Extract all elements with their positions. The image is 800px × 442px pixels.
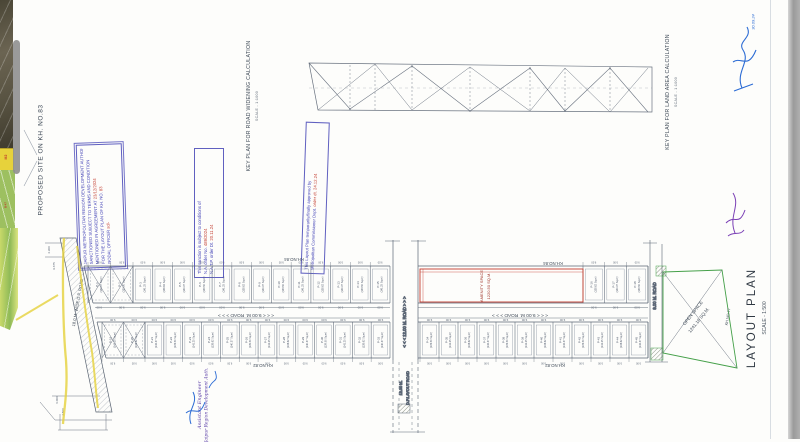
kh-no-84-label-1: KH.NO.84 <box>284 257 304 262</box>
svg-text:P-43(141.25 Sq.m): P-43(141.25 Sq.m) <box>596 332 604 348</box>
svg-text:P-30(139.50 Sq.m): P-30(139.50 Sq.m) <box>320 332 328 348</box>
svg-text:9.00: 9.00 <box>96 261 101 264</box>
amenity-space: AMENITY SPACE 1220.50 SQ.M. <box>420 269 583 302</box>
svg-text:P-2(139.50 Sq.m): P-2(139.50 Sq.m) <box>118 276 126 292</box>
svg-text:9.00: 9.00 <box>246 362 251 365</box>
svg-text:9.00: 9.00 <box>616 362 621 365</box>
svg-text:P-5(140.37 Sq.m): P-5(140.37 Sq.m) <box>178 276 186 292</box>
svg-text:9.00: 9.00 <box>278 306 284 310</box>
svg-text:9.00: 9.00 <box>635 362 640 365</box>
svg-text:9.00: 9.00 <box>578 318 584 322</box>
svg-text:P-37(140.37 Sq.m): P-37(140.37 Sq.m) <box>482 332 490 348</box>
svg-text:9.00: 9.00 <box>131 362 136 365</box>
svg-text:P-41(140.37 Sq.m): P-41(140.37 Sq.m) <box>558 332 566 348</box>
mid-road-label-1: < < < 9.00 M. ROAD > > > <box>218 312 274 318</box>
svg-text:P-10(139.50 Sq.m): P-10(139.50 Sq.m) <box>277 276 285 292</box>
leader-lines <box>24 130 37 186</box>
svg-text:6.000: 6.000 <box>55 396 59 404</box>
svg-text:P-36(138.62 Sq.m): P-36(138.62 Sq.m) <box>463 332 471 348</box>
svg-text:9.00: 9.00 <box>445 318 451 322</box>
svg-text:9.00: 9.00 <box>179 306 185 310</box>
svg-text:9.00: 9.00 <box>634 261 639 264</box>
svg-text:9.00: 9.00 <box>591 261 596 264</box>
svg-text:9.00: 9.00 <box>208 362 213 365</box>
svg-text:9.00: 9.00 <box>159 306 165 310</box>
kh-no-82-label-2: KH.NO.82 <box>545 363 565 368</box>
svg-text:9.00: 9.00 <box>170 318 176 322</box>
svg-text:9.00: 9.00 <box>597 362 602 365</box>
svg-text:9.00: 9.00 <box>239 261 244 264</box>
svg-text:9.00: 9.00 <box>258 261 263 264</box>
svg-text:9.00: 9.00 <box>357 261 362 264</box>
svg-text:P-18(139.50 Sq.m): P-18(139.50 Sq.m) <box>633 276 641 292</box>
svg-text:P-4(138.62 Sq.m): P-4(138.62 Sq.m) <box>158 276 166 292</box>
svg-text:P-27(141.25 Sq.m): P-27(141.25 Sq.m) <box>263 332 271 348</box>
svg-text:9.00: 9.00 <box>635 318 641 322</box>
svg-text:9.00: 9.00 <box>131 318 137 322</box>
svg-text:9.00: 9.00 <box>321 318 327 322</box>
svg-text:P-3(141.25 Sq.m): P-3(141.25 Sq.m) <box>139 276 147 292</box>
svg-text:9.00: 9.00 <box>521 318 527 322</box>
svg-text:9.00: 9.00 <box>298 306 304 310</box>
svg-text:9.00: 9.00 <box>227 318 233 322</box>
svg-text:9.00: 9.00 <box>540 362 545 365</box>
svg-text:9.00: 9.00 <box>110 318 116 322</box>
svg-text:P-21(140.37 Sq.m): P-21(140.37 Sq.m) <box>150 332 158 348</box>
svg-text:P-13(140.37 Sq.m): P-13(140.37 Sq.m) <box>336 276 344 292</box>
svg-text:9.00: 9.00 <box>340 318 346 322</box>
svg-text:9.00: 9.00 <box>318 306 324 310</box>
svg-text:9.00: 9.00 <box>160 261 165 264</box>
svg-text:9.00: 9.00 <box>302 362 307 365</box>
svg-text:9.00: 9.00 <box>359 318 365 322</box>
svg-text:9.00: 9.00 <box>337 306 343 310</box>
svg-text:9.00: 9.00 <box>338 261 343 264</box>
left-dp-road: 4.300 9.675 6.000 4.500 18.0 M. WIDE D.P… <box>40 238 112 430</box>
svg-text:9.00: 9.00 <box>464 318 470 322</box>
svg-text:P-28(138.62 Sq.m): P-28(138.62 Sq.m) <box>282 332 290 348</box>
svg-text:9.00: 9.00 <box>426 362 431 365</box>
svg-text:P-16(138.62 Sq.m): P-16(138.62 Sq.m) <box>590 276 598 292</box>
svg-text:P-12(138.62 Sq.m): P-12(138.62 Sq.m) <box>317 276 325 292</box>
svg-text:9.00: 9.00 <box>278 261 283 264</box>
svg-text:9.00: 9.00 <box>245 318 251 322</box>
svg-text:9.00: 9.00 <box>340 362 345 365</box>
svg-text:9.00: 9.00 <box>119 261 124 264</box>
signature-top-blue <box>733 27 756 91</box>
cross-road-label: < < < 12.00 M. ROAD > > > <box>402 296 407 348</box>
svg-text:P-6(139.50 Sq.m): P-6(139.50 Sq.m) <box>198 276 206 292</box>
scanned-layout-plan-sheet: { "titles": { "proposed_site": "PROPOSED… <box>0 0 800 439</box>
page-fold-line <box>770 0 771 439</box>
svg-text:P-14(139.50 Sq.m): P-14(139.50 Sq.m) <box>356 276 364 292</box>
svg-text:9.00: 9.00 <box>151 362 156 365</box>
signature-bottom-blue <box>186 392 205 424</box>
svg-text:9.00: 9.00 <box>199 261 204 264</box>
svg-text:P-35(141.25 Sq.m): P-35(141.25 Sq.m) <box>444 332 452 348</box>
svg-text:P-7(141.25 Sq.m): P-7(141.25 Sq.m) <box>218 276 226 292</box>
mid-road-label-2: < < < 9.00 M. ROAD > > > <box>492 312 548 318</box>
svg-text:9.00: 9.00 <box>378 362 383 365</box>
kh-no-84-label-2: KH.NO.84 <box>543 261 563 266</box>
kh-no-82-label-1: KH.NO.82 <box>253 363 273 368</box>
svg-text:9.00: 9.00 <box>559 318 565 322</box>
svg-text:P-23(141.25 Sq.m): P-23(141.25 Sq.m) <box>188 332 196 348</box>
scan-edge-strip <box>788 0 800 439</box>
svg-text:P-1(140.37 Sq.m): P-1(140.37 Sq.m) <box>95 276 103 292</box>
right-road-label: 9.00 M. ROAD <box>652 282 657 309</box>
svg-text:9.00: 9.00 <box>502 318 508 322</box>
svg-text:9.00: 9.00 <box>219 306 225 310</box>
svg-text:9.00: 9.00 <box>540 318 546 322</box>
right-road-9m: 9.00 M. ROAD <box>643 240 668 362</box>
svg-text:9.00: 9.00 <box>189 318 195 322</box>
svg-text:P-32(138.62 Sq.m): P-32(138.62 Sq.m) <box>358 332 366 348</box>
svg-text:9.00: 9.00 <box>612 306 618 310</box>
svg-text:9.00: 9.00 <box>318 261 323 264</box>
svg-text:9.00: 9.00 <box>283 362 288 365</box>
svg-text:9.00: 9.00 <box>502 362 507 365</box>
svg-text:P-40(138.62 Sq.m): P-40(138.62 Sq.m) <box>539 332 547 348</box>
svg-text:9.00: 9.00 <box>445 362 450 365</box>
svg-text:9.00: 9.00 <box>612 261 617 264</box>
svg-text:9.00: 9.00 <box>377 318 383 322</box>
svg-text:9.00: 9.00 <box>483 362 488 365</box>
svg-text:9.00: 9.00 <box>283 318 289 322</box>
svg-text:9.00: 9.00 <box>483 318 489 322</box>
svg-text:P-29(140.37 Sq.m): P-29(140.37 Sq.m) <box>301 332 309 348</box>
svg-text:9.00: 9.00 <box>151 318 157 322</box>
dp-layout-road-label-2: D.P.LAYOUT ROAD <box>406 371 410 405</box>
svg-text:9.00: 9.00 <box>96 306 102 310</box>
svg-text:P-22(139.50 Sq.m): P-22(139.50 Sq.m) <box>169 332 177 348</box>
svg-text:9.00: 9.00 <box>199 306 205 310</box>
svg-text:P-9(140.37 Sq.m): P-9(140.37 Sq.m) <box>257 276 265 292</box>
svg-text:P-45(140.37 Sq.m): P-45(140.37 Sq.m) <box>634 332 642 348</box>
svg-text:9.00: 9.00 <box>258 306 264 310</box>
key-plan-truss <box>309 63 652 112</box>
amenity-label: AMENITY SPACE <box>479 270 484 302</box>
svg-text:9.00: 9.00 <box>170 362 175 365</box>
svg-text:P-26(139.50 Sq.m): P-26(139.50 Sq.m) <box>244 332 252 348</box>
svg-text:9.00: 9.00 <box>521 362 526 365</box>
svg-text:9.00: 9.00 <box>321 362 326 365</box>
svg-text:P-11(141.25 Sq.m): P-11(141.25 Sq.m) <box>297 276 305 292</box>
dp-layout-road-label-1: 12.00 M. <box>399 381 403 396</box>
svg-text:P-42(139.50 Sq.m): P-42(139.50 Sq.m) <box>577 332 585 348</box>
svg-text:9.00: 9.00 <box>578 362 583 365</box>
svg-text:P-31(141.25 Sq.m): P-31(141.25 Sq.m) <box>339 332 347 348</box>
svg-text:P-24(138.62 Sq.m): P-24(138.62 Sq.m) <box>207 332 215 348</box>
plot-cells: P-1(140.37 Sq.m)9.009.00P-2(139.50 Sq.m)… <box>88 261 648 365</box>
svg-text:9.00: 9.00 <box>634 306 640 310</box>
layout-plan-drawing: 4.300 9.675 6.000 4.500 18.0 M. WIDE D.P… <box>0 0 800 439</box>
svg-text:9.00: 9.00 <box>264 318 270 322</box>
svg-text:P-25(140.37 Sq.m): P-25(140.37 Sq.m) <box>226 332 234 348</box>
svg-text:9.00: 9.00 <box>359 362 364 365</box>
svg-text:9.00: 9.00 <box>239 306 245 310</box>
svg-text:9.00: 9.00 <box>464 362 469 365</box>
initials-mark <box>209 371 216 388</box>
svg-text:9.00: 9.00 <box>591 306 597 310</box>
svg-text:9.00: 9.00 <box>110 362 115 365</box>
svg-text:9.00: 9.00 <box>357 306 363 310</box>
svg-text:9.675: 9.675 <box>52 262 56 270</box>
svg-text:P-15(141.25 Sq.m): P-15(141.25 Sq.m) <box>376 276 384 292</box>
svg-text:P-44(138.62 Sq.m): P-44(138.62 Sq.m) <box>615 332 623 348</box>
svg-text:9.00: 9.00 <box>426 318 432 322</box>
svg-text:P-34(139.50 Sq.m): P-34(139.50 Sq.m) <box>425 332 433 348</box>
svg-text:9.00: 9.00 <box>616 318 622 322</box>
svg-text:P-39(141.25 Sq.m): P-39(141.25 Sq.m) <box>520 332 528 348</box>
svg-text:P-38(139.50 Sq.m): P-38(139.50 Sq.m) <box>501 332 509 348</box>
svg-text:9.00: 9.00 <box>140 306 146 310</box>
svg-text:P-33(140.37 Sq.m): P-33(140.37 Sq.m) <box>376 332 384 348</box>
svg-text:9.00: 9.00 <box>179 261 184 264</box>
svg-text:9.00: 9.00 <box>227 362 232 365</box>
svg-text:P-17(140.37 Sq.m): P-17(140.37 Sq.m) <box>611 276 619 292</box>
svg-text:9.00: 9.00 <box>377 306 383 310</box>
svg-text:9.00: 9.00 <box>140 261 145 264</box>
svg-text:9.00: 9.00 <box>302 318 308 322</box>
amenity-area: 1220.50 SQ.M. <box>486 273 491 300</box>
svg-text:9.00: 9.00 <box>189 362 194 365</box>
svg-text:9.00: 9.00 <box>219 261 224 264</box>
svg-text:9.00: 9.00 <box>208 318 214 322</box>
signature-purple <box>726 193 745 236</box>
open-space-triangle: OPEN SPACE 1241.16 SQ.M. KH.NO.77 <box>651 266 737 368</box>
svg-text:9.00: 9.00 <box>377 261 382 264</box>
svg-text:P-8(138.62 Sq.m): P-8(138.62 Sq.m) <box>238 276 246 292</box>
svg-text:9.00: 9.00 <box>597 318 603 322</box>
svg-text:9.00: 9.00 <box>119 306 125 310</box>
svg-text:4.300: 4.300 <box>47 246 51 254</box>
